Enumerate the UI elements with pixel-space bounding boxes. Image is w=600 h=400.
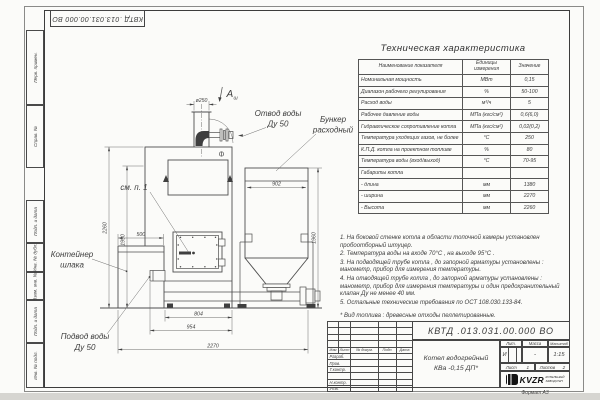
sheet-cell: Лист 1 xyxy=(500,363,535,371)
inlet-label-line1: Подвод воды xyxy=(61,332,110,341)
note-4: 4. На отводящей трубе котла , до запорно… xyxy=(340,276,568,299)
margin-cell-inv-dubl: Инв. № дубл. xyxy=(26,243,44,272)
scale-header: Масштаб xyxy=(548,340,570,347)
bunker-label-line1: Бункер xyxy=(320,115,347,124)
scale-value: 1:15 xyxy=(548,347,570,363)
technical-notes: 1. На боковой стенке котла в области топ… xyxy=(340,235,568,322)
spec-row: Температура воды (вход/выход)°С70-95 xyxy=(359,156,549,168)
inlet-label-line2: Ду 50 xyxy=(74,343,96,352)
dim-1990: 1990 xyxy=(121,234,127,246)
spec-row: Температура уходящих газов, не более°С25… xyxy=(359,132,549,144)
spec-row: Диапазон рабочего регулирования%50-100 xyxy=(359,86,549,98)
note-2: 2. Температура воды на входе 70°С , на в… xyxy=(340,251,568,259)
margin-cell-vzam: Взам. инв. № xyxy=(26,272,44,300)
view-label: А xyxy=(226,89,234,100)
spec-row: Расход водым³/ч5 xyxy=(359,98,549,110)
lit-header: Лит. xyxy=(500,340,522,347)
spec-row: Рабочее давление водыМПа (кгс/см²)0,6(6,… xyxy=(359,109,549,121)
dim-954: 954 xyxy=(187,324,196,330)
kvzr-logo-icon xyxy=(506,374,518,385)
dim-d250: ø250 xyxy=(196,98,208,104)
spec-col-units: Единицы измерения xyxy=(463,60,511,75)
fuel-bunker xyxy=(232,168,320,308)
org-name: КОТЕЛЬНЫЙ ЗАВОД РЭП xyxy=(545,376,564,383)
margin-cell-podp2: Подп. и дата xyxy=(26,300,44,343)
dim-804: 804 xyxy=(194,311,203,317)
margin-cell-podp1: Подп. и дата xyxy=(26,200,44,243)
outlet-label-line1: Отвод воды xyxy=(255,109,302,118)
bunker-label-line2: расходный xyxy=(312,126,354,135)
sheets-cell: Листов 2 xyxy=(535,363,570,371)
water-outlet-fitting xyxy=(209,129,233,141)
boiler-general-view: ø250 902 500 2260 1990 1960 xyxy=(50,78,355,363)
water-inlet-stub xyxy=(150,271,165,282)
titleblock-product-name: Котел водогрейный КВа -0,15 ДП* xyxy=(412,340,500,388)
spec-table: Наименование показателя Единицы измерени… xyxy=(358,59,549,214)
spec-row: - длинамм1380 xyxy=(359,179,549,191)
note-5: 5. Остальные технические требования по О… xyxy=(340,300,568,308)
spec-row: Номинальная мощностьМВт0,15 xyxy=(359,75,549,87)
signature-row: Утв. xyxy=(328,385,413,391)
dim-1960: 1960 xyxy=(312,232,318,244)
spec-row: Габариты котла xyxy=(359,167,549,179)
mass-value: - xyxy=(522,347,548,363)
note-3: 3. На подводящей трубе котла , до запорн… xyxy=(340,260,568,275)
outlet-label-line2: Ду 50 xyxy=(267,120,289,129)
dim-500: 500 xyxy=(136,232,145,238)
spec-table-title: Техническая характеристика xyxy=(358,43,548,54)
titleblock-designation: КВТД .013.031.00.000 ВО xyxy=(412,321,570,340)
format-label: Формат А3 xyxy=(500,390,570,396)
margin-cell-sprav: Справ. № xyxy=(26,105,44,168)
dim-2260: 2260 xyxy=(103,222,109,235)
doc-number-top-box: КВТД .013.031.00.000 ВО xyxy=(50,10,145,27)
furnace-door xyxy=(173,232,225,272)
spec-col-value: Значение xyxy=(511,60,549,75)
lit-value: И xyxy=(501,352,508,358)
title-block: ИзмЛист № докум.Подп. Дата Разраб. Пров.… xyxy=(327,321,570,388)
drawing-sheet: Перв. примен. Справ. № Подп. и дата Инв.… xyxy=(0,0,600,400)
dim-2270: 2270 xyxy=(206,343,219,349)
lit-value-cell: И xyxy=(500,347,522,363)
margin-cell-perv: Перв. примен. xyxy=(26,30,44,105)
spec-row: Гидравлическое сопротивление котлаМПа (к… xyxy=(359,121,549,133)
org-cell: KVZR КОТЕЛЬНЫЙ ЗАВОД РЭП xyxy=(500,371,570,388)
kvzr-logo-text: KVZR xyxy=(520,375,544,385)
titleblock-signature-table: ИзмЛист № докум.Подп. Дата Разраб. Пров.… xyxy=(327,321,413,392)
spec-row: - ширинамм2270 xyxy=(359,190,549,202)
mass-header: Масса xyxy=(522,340,548,347)
spec-row: - Высотамм2260 xyxy=(359,202,549,214)
doc-number-rotated: КВТД .013.031.00.000 ВО xyxy=(52,15,143,22)
spec-header-row: Наименование показателя Единицы измерени… xyxy=(359,60,549,75)
dim-902: 902 xyxy=(272,181,281,187)
container-label-line1: Контейнер xyxy=(51,250,94,259)
spec-row: К.П.Д. котла на проектном топливе%80 xyxy=(359,144,549,156)
container-label-line2: шлака xyxy=(60,261,84,270)
margin-cell-inv-podl: Инв. № подл. xyxy=(26,343,44,388)
see-note-label: см. п. 1 xyxy=(120,183,147,192)
fuel-note: * Вид топлива : древесные отходы пеллети… xyxy=(340,313,568,321)
view-label-sub: ш xyxy=(234,96,239,102)
note-1: 1. На боковой стенке котла в области топ… xyxy=(340,235,568,250)
view-arrow-a: А ш xyxy=(218,87,238,102)
spec-col-name: Наименование показателя xyxy=(359,60,463,75)
